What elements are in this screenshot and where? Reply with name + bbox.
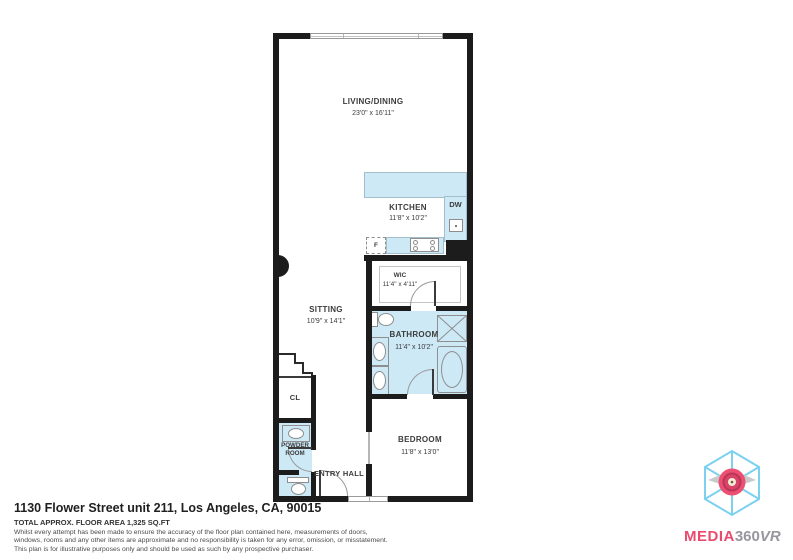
- fridge-label: F: [366, 242, 386, 249]
- logo-text-360: 360: [735, 528, 760, 545]
- living-room-label: LIVING/DINING: [293, 98, 453, 107]
- drone-wing-left: [708, 475, 720, 484]
- living-room-dims: 23'0" x 16'11": [293, 110, 453, 118]
- stove-burner: [430, 240, 435, 245]
- logo-wordmark: MEDIA360VR: [684, 528, 780, 545]
- entry-hall-label: ENTRY HALL: [300, 470, 378, 478]
- wall-bedroom-left-lower: [366, 464, 372, 496]
- wall-bath-bottom-left: [366, 394, 407, 399]
- kitchen-label: KITCHEN: [358, 204, 458, 213]
- disclaimer-line: Whilst every attempt has been made to en…: [14, 529, 388, 536]
- stove-burner: [413, 246, 418, 251]
- bathroom-toilet-bowl: [378, 313, 394, 326]
- window-mullion: [418, 34, 419, 38]
- wic-label: WIC: [360, 272, 440, 279]
- wall-bedroom-left-upper: [366, 399, 372, 432]
- powder-sink: [288, 428, 304, 439]
- wall-kitchen-bottom: [364, 255, 473, 261]
- window-glass-line: [311, 36, 442, 37]
- disclaimer-line: This plan is for illustrative purposes o…: [14, 546, 388, 553]
- bathtub-basin: [441, 351, 463, 388]
- wall-powder-stub: [279, 470, 299, 475]
- closet-label: CL: [275, 394, 315, 402]
- window-mullion: [343, 34, 344, 38]
- disclaimer-line: windows, rooms and any other items are a…: [14, 537, 388, 544]
- logo-text-vr: VR: [760, 528, 781, 545]
- powder-toilet-bowl: [291, 483, 306, 495]
- stove-burner: [430, 246, 435, 251]
- footer: 1130 Flower Street unit 211, Los Angeles…: [14, 501, 388, 553]
- wall-closet-bottom: [273, 418, 316, 423]
- wall-right: [467, 33, 473, 502]
- logo-text-media: MEDIA: [684, 528, 735, 545]
- stove-burner: [413, 240, 418, 245]
- bathroom-sink-2: [373, 371, 386, 390]
- wic-dims: 11'4" x 4'11": [360, 281, 440, 288]
- bathroom-door-leaf: [432, 369, 434, 395]
- closet-top-line: [279, 376, 312, 378]
- media360vr-cube-icon: [684, 448, 780, 522]
- kitchen-sink-drain: [455, 225, 457, 227]
- bedroom-label: BEDROOM: [370, 436, 470, 445]
- kitchen-dims: 11'8" x 10'2": [358, 215, 458, 223]
- sitting-label: SITTING: [276, 306, 376, 315]
- wall-bottom-right: [388, 496, 473, 502]
- floor-area: TOTAL APPROX. FLOOR AREA 1,325 SQ.FT: [14, 518, 388, 527]
- living-window: [310, 33, 443, 39]
- kitchen-counter-top: [364, 172, 467, 198]
- wall-column-bump: [278, 255, 289, 277]
- media360vr-logo: MEDIA360VR: [684, 448, 780, 545]
- property-address: 1130 Flower Street unit 211, Los Angeles…: [14, 501, 388, 515]
- wall-bath-bottom-right: [433, 394, 473, 399]
- bathroom-dims: 11'4" x 10'2": [364, 344, 464, 352]
- floorplan-page: F DW: [0, 0, 793, 560]
- drone-wing-right: [744, 475, 756, 484]
- powder-room-label-1: POWDER: [277, 443, 313, 450]
- bathroom-label: BATHROOM: [364, 331, 464, 340]
- wall-wic-bottom-right: [436, 306, 473, 311]
- sitting-dims: 10'9" x 14'1": [276, 318, 376, 326]
- powder-room-label-2: ROOM: [277, 451, 313, 458]
- camera-lens-dot: [731, 481, 734, 484]
- bedroom-dims: 11'8" x 13'0": [370, 449, 470, 457]
